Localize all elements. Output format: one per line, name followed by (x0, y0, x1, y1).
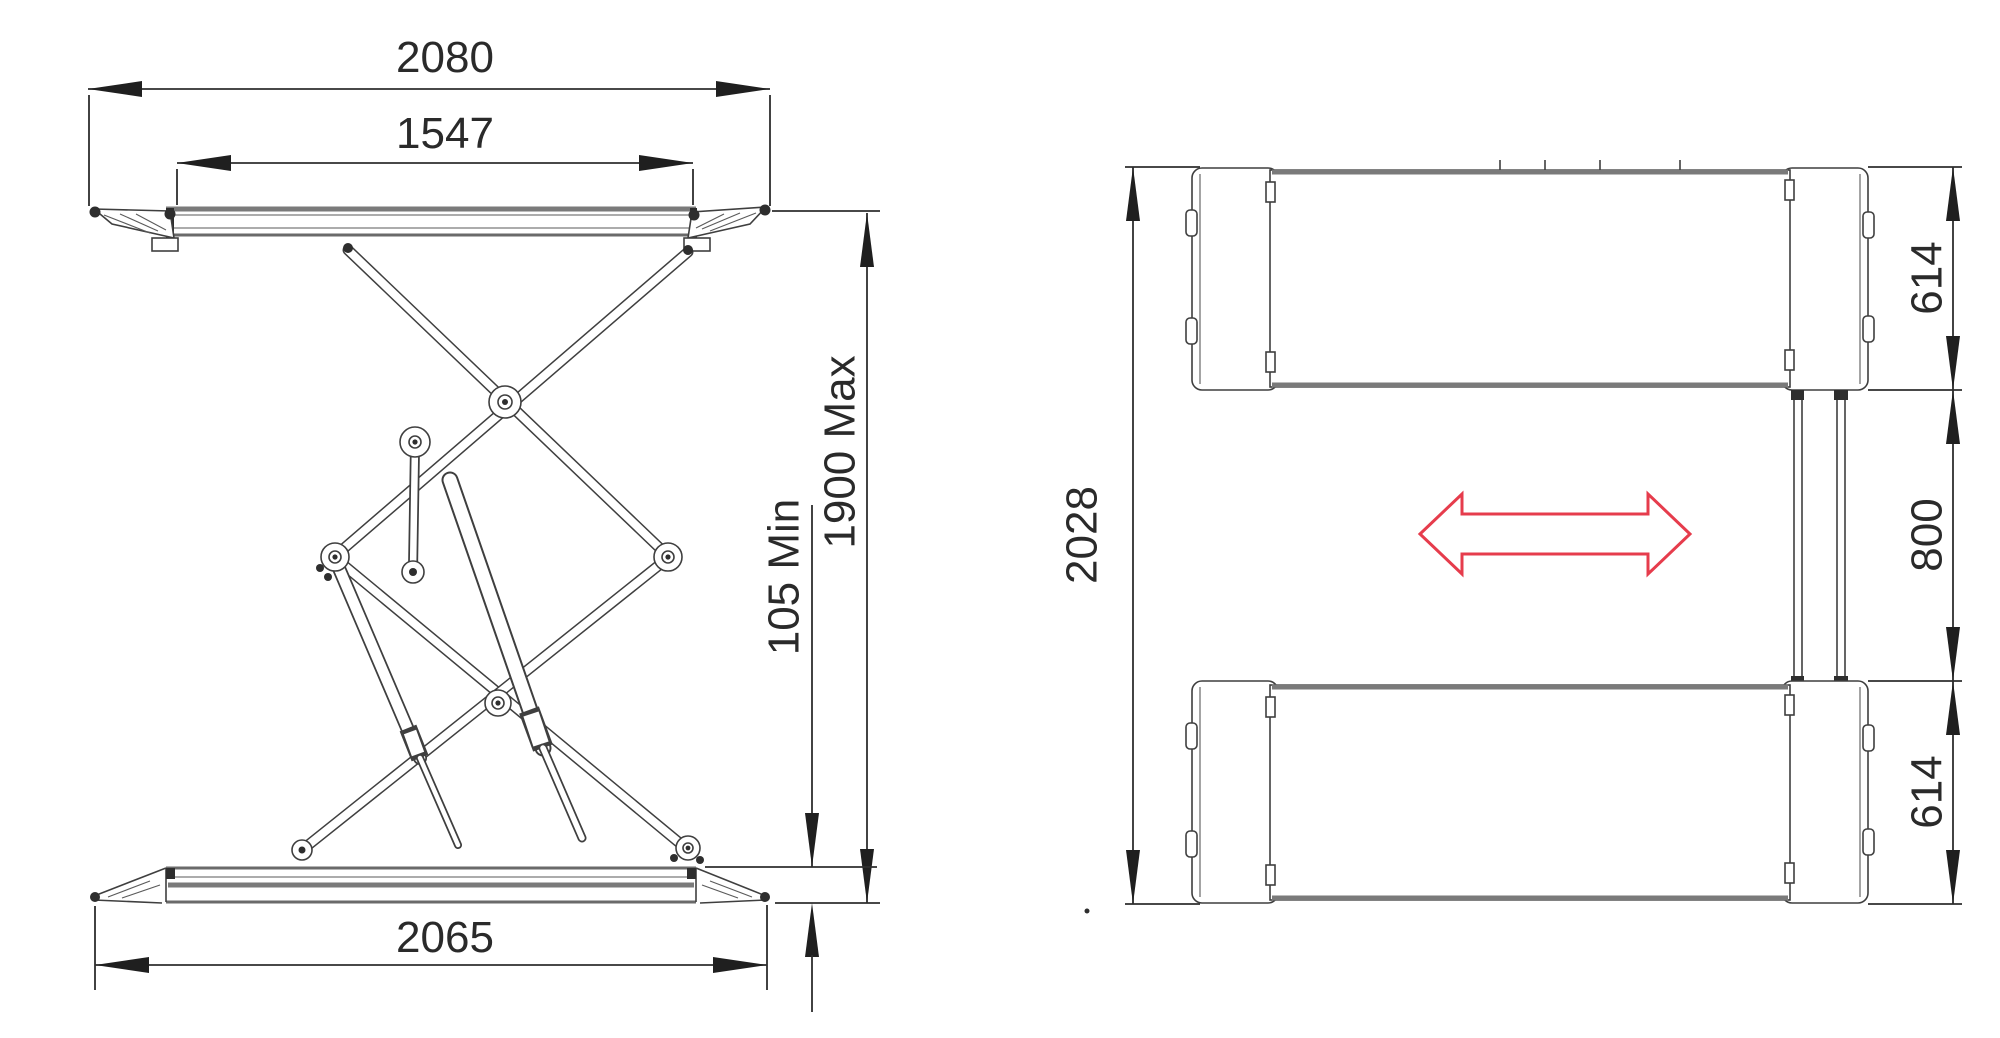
double-arrow-icon (1420, 494, 1690, 574)
pivot-base-left (292, 840, 312, 860)
ramp-pivot-dot (90, 892, 100, 902)
scissor-mechanism (292, 243, 704, 864)
ramp-pivot-dot (760, 205, 771, 216)
technical-drawing-canvas: 2080 1547 (0, 0, 2000, 1038)
ramp-pivot-dot (689, 210, 700, 221)
sync-link (400, 427, 430, 583)
plan-view: 2028 (1058, 160, 1962, 914)
dimension-overall-length: 2028 (1058, 167, 1140, 904)
dimension-platform-length: 1547 (177, 109, 693, 205)
base-right-ramp (696, 868, 770, 903)
dim-platform-width-top-label: 614 (1903, 241, 1952, 314)
top-platform (166, 206, 697, 238)
connecting-rails (1791, 390, 1848, 686)
top-right-ramp (684, 205, 771, 252)
plan-top-platform (1186, 160, 1874, 390)
dimension-base-length: 2065 (95, 905, 767, 990)
ramp-pivot-dot (165, 209, 176, 220)
dim-top-width-label: 2080 (396, 33, 494, 82)
top-left-ramp (90, 207, 179, 252)
dim-center-gap-label: 800 (1903, 498, 1952, 571)
base-left-ramp (90, 868, 166, 903)
pivot-mid-right (654, 543, 682, 571)
base-frame (90, 866, 770, 904)
side-view: 2080 1547 (88, 33, 880, 1012)
hydraulic-cylinder (450, 480, 582, 838)
pivot-upper-cross (489, 386, 521, 418)
dim-max-height-label: 1900 Max (816, 355, 865, 548)
ramp-pivot-dot (90, 207, 101, 218)
plan-bottom-platform (1186, 681, 1874, 903)
dim-platform-length-label: 1547 (396, 109, 494, 158)
dimension-right-column: 614 800 614 (1903, 167, 1960, 904)
dim-platform-width-bottom-label: 614 (1903, 755, 1952, 828)
dim-base-length-label: 2065 (396, 913, 494, 962)
pivot-lower-cross (485, 690, 511, 716)
drawing-page: 2080 1547 (0, 0, 2000, 1038)
dim-overall-length-label: 2028 (1058, 486, 1107, 584)
dimension-min-height: 105 Min (705, 499, 877, 1012)
dim-min-height-label: 105 Min (760, 499, 809, 656)
ramp-pivot-dot (760, 892, 770, 902)
